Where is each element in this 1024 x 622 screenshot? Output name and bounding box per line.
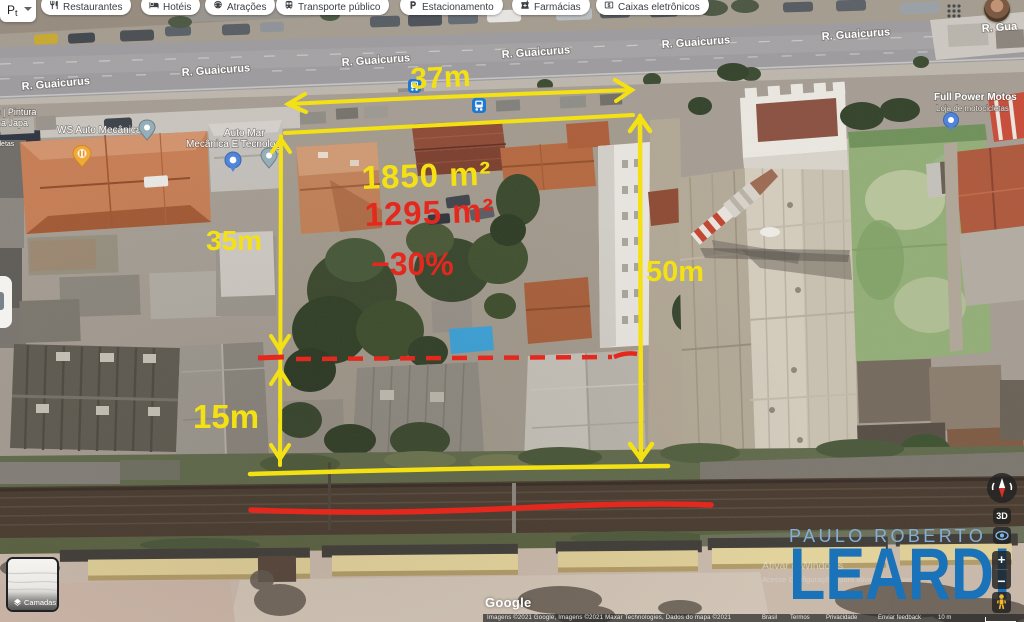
svg-text:R. Gua: R. Gua bbox=[981, 20, 1018, 35]
svg-text:R. Guaicurus: R. Guaicurus bbox=[181, 62, 250, 79]
svg-text:cletas: cletas bbox=[0, 141, 15, 148]
svg-text:R. Guaicurus: R. Guaicurus bbox=[501, 44, 570, 61]
svg-text:1295 m²: 1295 m² bbox=[364, 191, 495, 233]
svg-text:37m: 37m bbox=[410, 60, 472, 96]
svg-text:R. Guaicurus: R. Guaicurus bbox=[21, 75, 90, 93]
svg-text:R. Guaicurus: R. Guaicurus bbox=[661, 34, 730, 51]
svg-text:R. Guaicurus: R. Guaicurus bbox=[821, 26, 890, 43]
svg-text:−30%: −30% bbox=[371, 246, 454, 282]
svg-text:15m: 15m bbox=[193, 398, 259, 435]
svg-text:Loja de motocicletas: Loja de motocicletas bbox=[936, 104, 1009, 113]
svg-text:1850 m²: 1850 m² bbox=[361, 154, 492, 196]
svg-text:na Japa: na Japa bbox=[0, 118, 28, 128]
svg-text:s | Pintura: s | Pintura bbox=[0, 107, 36, 117]
svg-text:50m: 50m bbox=[646, 256, 704, 288]
svg-text:WS Auto Mecânica: WS Auto Mecânica bbox=[57, 125, 142, 136]
svg-text:35m: 35m bbox=[206, 225, 262, 256]
svg-text:Full Power Motos: Full Power Motos bbox=[934, 92, 1017, 103]
svg-text:Auto Mar: Auto Mar bbox=[224, 128, 265, 139]
svg-text:R. Guaicurus: R. Guaicurus bbox=[341, 52, 410, 69]
